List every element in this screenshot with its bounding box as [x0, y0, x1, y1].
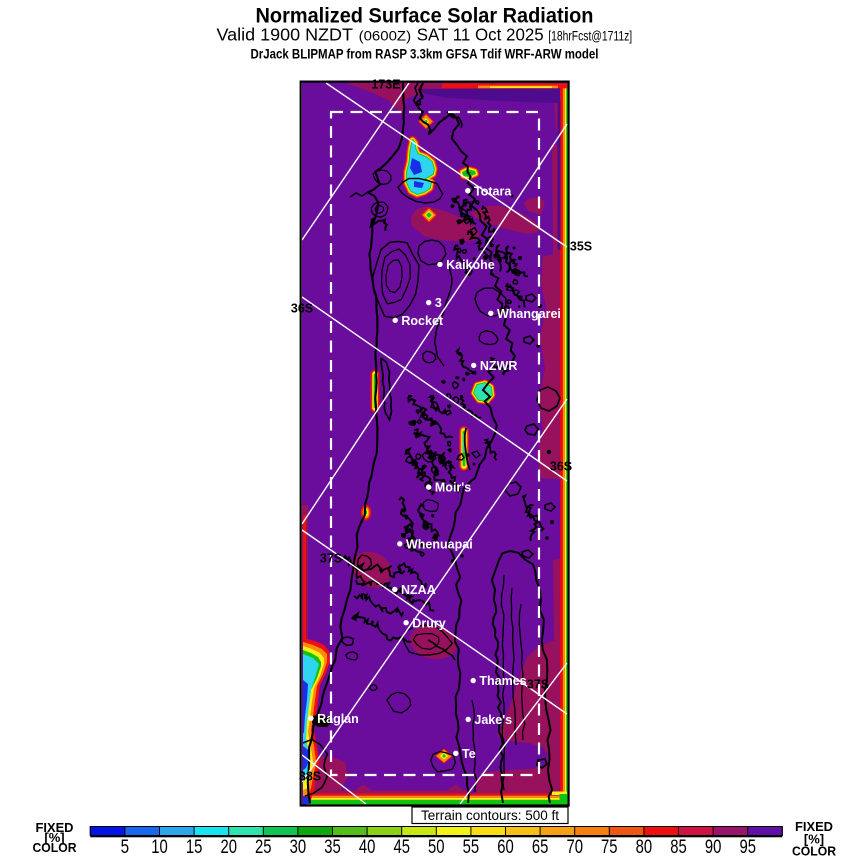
svg-text:Te: Te	[462, 747, 476, 761]
svg-text:90: 90	[705, 837, 722, 858]
svg-text:Whenuapai: Whenuapai	[406, 537, 473, 551]
svg-text:SAT 11 Oct 2025: SAT 11 Oct 2025	[417, 25, 544, 45]
svg-text:95: 95	[739, 837, 756, 858]
svg-text:35: 35	[324, 837, 341, 858]
svg-text:15: 15	[186, 837, 203, 858]
svg-text:36S: 36S	[550, 460, 572, 474]
svg-text:30: 30	[290, 837, 307, 858]
svg-text:5: 5	[121, 837, 130, 858]
svg-text:80: 80	[636, 837, 653, 858]
svg-text:36S: 36S	[291, 302, 313, 316]
svg-text:Jake's: Jake's	[474, 713, 512, 727]
svg-text:10: 10	[151, 837, 168, 858]
svg-text:Whangarei: Whangarei	[497, 307, 561, 321]
svg-text:Terrain contours: 500 ft: Terrain contours: 500 ft	[421, 808, 559, 823]
svg-text:Thames: Thames	[479, 674, 526, 688]
svg-text:NZAA: NZAA	[401, 583, 436, 597]
svg-text:35S: 35S	[570, 240, 592, 254]
svg-text:NZWR: NZWR	[480, 359, 518, 373]
svg-text:20: 20	[220, 837, 237, 858]
svg-text:[18hrFcst@1711z]: [18hrFcst@1711z]	[548, 29, 632, 44]
svg-text:Raglan: Raglan	[317, 712, 359, 726]
svg-text:173E: 173E	[371, 78, 400, 92]
svg-text:Valid 1900 NZDT: Valid 1900 NZDT	[217, 25, 354, 45]
svg-text:37S: 37S	[320, 552, 342, 566]
svg-text:DrJack BLIPMAP from RASP 3.3km: DrJack BLIPMAP from RASP 3.3km GFSA Tdif…	[251, 47, 599, 62]
svg-text:COLOR: COLOR	[792, 844, 837, 859]
svg-text:40: 40	[359, 837, 376, 858]
svg-text:70: 70	[566, 837, 583, 858]
svg-text:Moir's: Moir's	[435, 481, 471, 495]
svg-text:(0600Z): (0600Z)	[359, 29, 412, 44]
svg-text:COLOR: COLOR	[33, 840, 78, 855]
svg-text:45: 45	[393, 837, 410, 858]
svg-text:Kaikohe: Kaikohe	[446, 258, 495, 272]
svg-text:60: 60	[497, 837, 514, 858]
svg-text:38S: 38S	[299, 770, 321, 784]
svg-text:37S: 37S	[527, 678, 549, 692]
svg-text:50: 50	[428, 837, 445, 858]
svg-text:75: 75	[601, 837, 618, 858]
svg-text:65: 65	[532, 837, 549, 858]
svg-text:85: 85	[670, 837, 687, 858]
svg-text:55: 55	[463, 837, 480, 858]
svg-text:3: 3	[435, 296, 442, 310]
svg-text:Totara: Totara	[474, 184, 512, 198]
svg-text:Rocket: Rocket	[401, 314, 444, 328]
svg-text:25: 25	[255, 837, 272, 858]
svg-text:Drury: Drury	[412, 616, 445, 630]
